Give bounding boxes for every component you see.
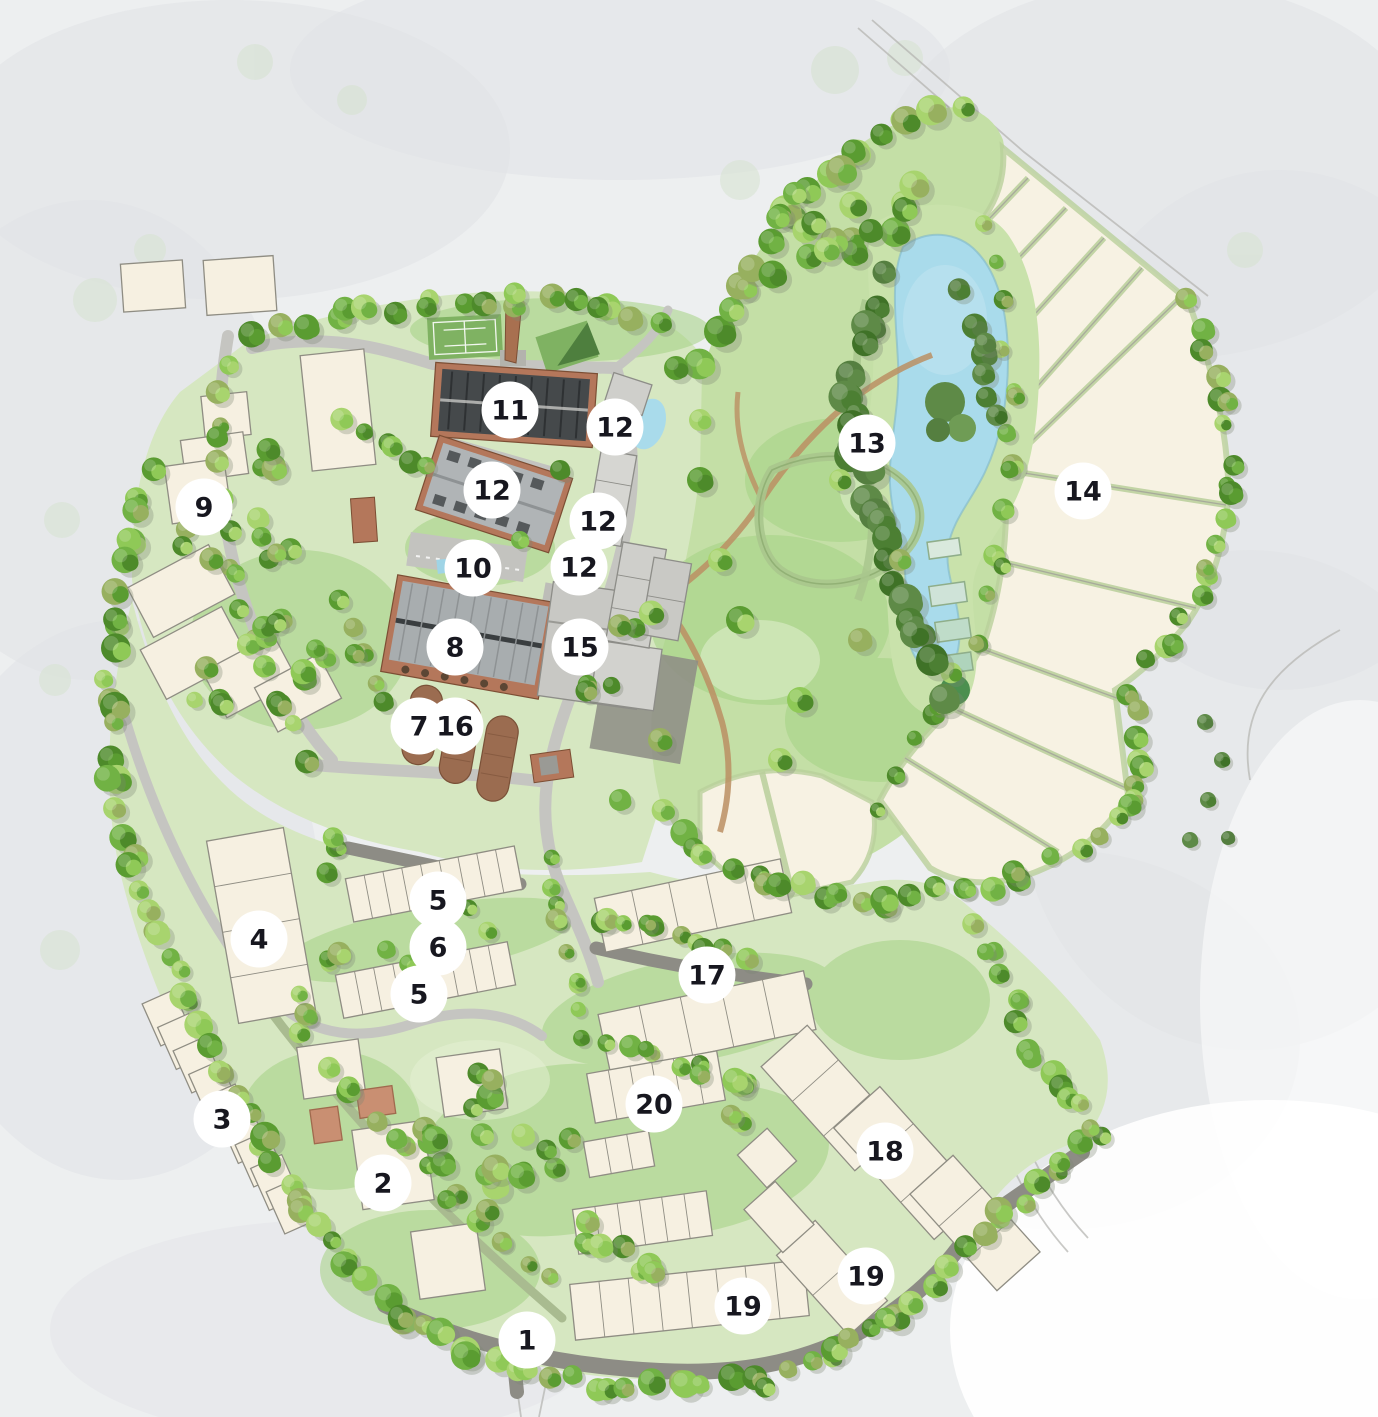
building	[411, 1223, 486, 1300]
map-marker-18[interactable]: 18	[857, 1123, 914, 1180]
building	[120, 260, 185, 312]
svg-text:9: 9	[195, 492, 214, 523]
map-marker-6[interactable]: 6	[410, 919, 467, 976]
svg-text:3: 3	[213, 1104, 232, 1135]
map-marker-4[interactable]: 4	[231, 911, 288, 968]
tennis-court	[427, 314, 503, 360]
svg-text:10: 10	[454, 553, 492, 584]
svg-text:5: 5	[429, 885, 448, 916]
svg-text:6: 6	[429, 932, 448, 963]
map-marker-10[interactable]: 10	[445, 540, 502, 597]
map-marker-1[interactable]: 1	[499, 1312, 556, 1369]
svg-text:12: 12	[579, 506, 617, 537]
map-marker-20[interactable]: 20	[626, 1076, 683, 1133]
map-marker-8[interactable]: 8	[427, 619, 484, 676]
svg-text:4: 4	[250, 924, 269, 955]
svg-text:18: 18	[866, 1136, 904, 1167]
svg-text:19: 19	[847, 1261, 885, 1292]
map-marker-17[interactable]: 17	[679, 947, 736, 1004]
svg-text:5: 5	[410, 979, 429, 1010]
map-marker-13[interactable]: 13	[839, 415, 896, 472]
map-marker-12[interactable]: 12	[587, 399, 644, 456]
map-marker-14[interactable]: 14	[1055, 463, 1112, 520]
svg-text:12: 12	[560, 552, 598, 583]
svg-text:16: 16	[436, 711, 474, 742]
svg-text:13: 13	[848, 428, 886, 459]
svg-text:8: 8	[446, 632, 465, 663]
map-marker-2[interactable]: 2	[355, 1155, 412, 1212]
svg-text:14: 14	[1064, 476, 1102, 507]
masterplan-svg: 1234556789101112121212131415161718191920	[0, 0, 1378, 1417]
svg-text:15: 15	[561, 632, 599, 663]
svg-text:17: 17	[688, 960, 726, 991]
svg-text:20: 20	[635, 1089, 673, 1120]
svg-text:12: 12	[473, 475, 511, 506]
map-marker-3[interactable]: 3	[194, 1091, 251, 1148]
map-marker-19[interactable]: 19	[715, 1278, 772, 1335]
svg-text:7: 7	[410, 711, 429, 742]
map-marker-12[interactable]: 12	[464, 462, 521, 519]
svg-text:19: 19	[724, 1291, 762, 1322]
map-marker-9[interactable]: 9	[176, 479, 233, 536]
svg-text:1: 1	[518, 1325, 537, 1356]
svg-text:11: 11	[491, 395, 529, 426]
map-marker-16[interactable]: 16	[427, 698, 484, 755]
masterplan-map: 1234556789101112121212131415161718191920	[0, 0, 1378, 1417]
map-marker-15[interactable]: 15	[552, 619, 609, 676]
building	[203, 256, 277, 316]
map-marker-12[interactable]: 12	[551, 539, 608, 596]
svg-text:2: 2	[374, 1168, 393, 1199]
map-marker-19[interactable]: 19	[838, 1248, 895, 1305]
map-marker-11[interactable]: 11	[482, 382, 539, 439]
building	[310, 1106, 342, 1144]
svg-text:12: 12	[596, 412, 634, 443]
